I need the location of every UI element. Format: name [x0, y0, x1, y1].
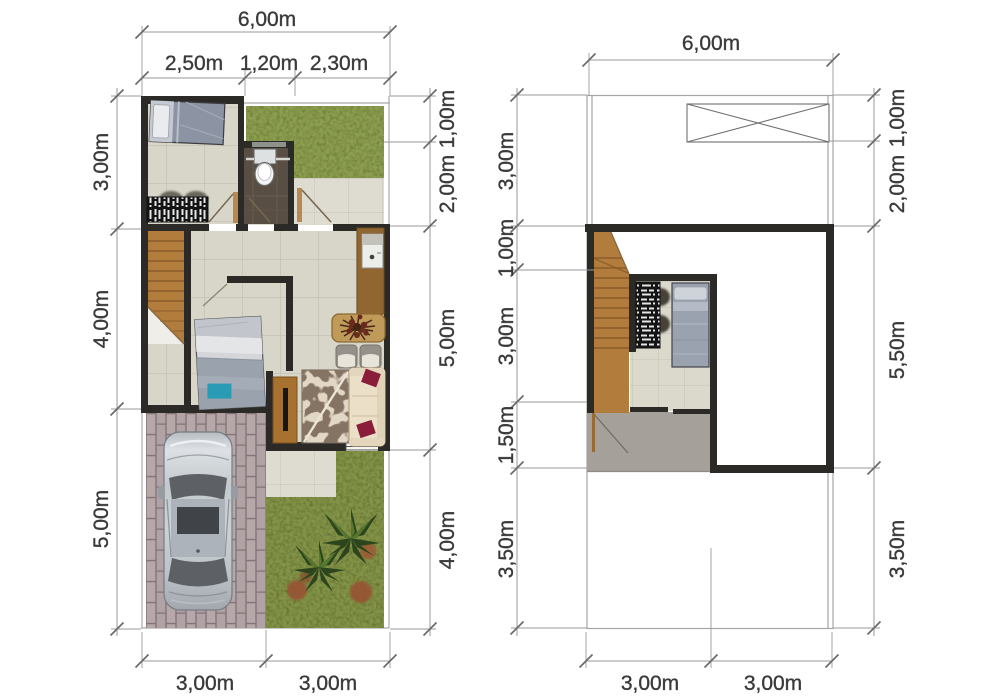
svg-text:4,00m: 4,00m [90, 290, 113, 348]
svg-text:4,00m: 4,00m [436, 511, 459, 569]
svg-text:1,00m: 1,00m [436, 90, 459, 148]
svg-text:3,00m: 3,00m [744, 672, 802, 695]
svg-text:3,00m: 3,00m [299, 672, 357, 695]
svg-text:3,00m: 3,00m [621, 672, 679, 695]
svg-text:6,00m: 6,00m [682, 32, 740, 55]
svg-text:1,00m: 1,00m [886, 89, 909, 147]
svg-text:3,00m: 3,00m [176, 672, 234, 695]
svg-text:6,00m: 6,00m [238, 8, 296, 31]
svg-text:5,00m: 5,00m [90, 490, 113, 548]
svg-text:3,00m: 3,00m [90, 133, 113, 191]
svg-text:5,50m: 5,50m [886, 321, 909, 379]
svg-text:2,00m: 2,00m [886, 155, 909, 213]
svg-text:1,00m: 1,00m [495, 219, 518, 277]
svg-text:3,50m: 3,50m [886, 520, 909, 578]
svg-text:3,50m: 3,50m [495, 520, 518, 578]
svg-text:2,00m: 2,00m [436, 155, 459, 213]
svg-text:1,50m: 1,50m [495, 406, 518, 464]
svg-text:5,00m: 5,00m [436, 309, 459, 367]
svg-text:3,00m: 3,00m [495, 307, 518, 365]
svg-text:3,00m: 3,00m [495, 132, 518, 190]
svg-text:2,30m: 2,30m [310, 52, 368, 75]
svg-text:1,20m: 1,20m [240, 52, 298, 75]
svg-text:2,50m: 2,50m [165, 52, 223, 75]
